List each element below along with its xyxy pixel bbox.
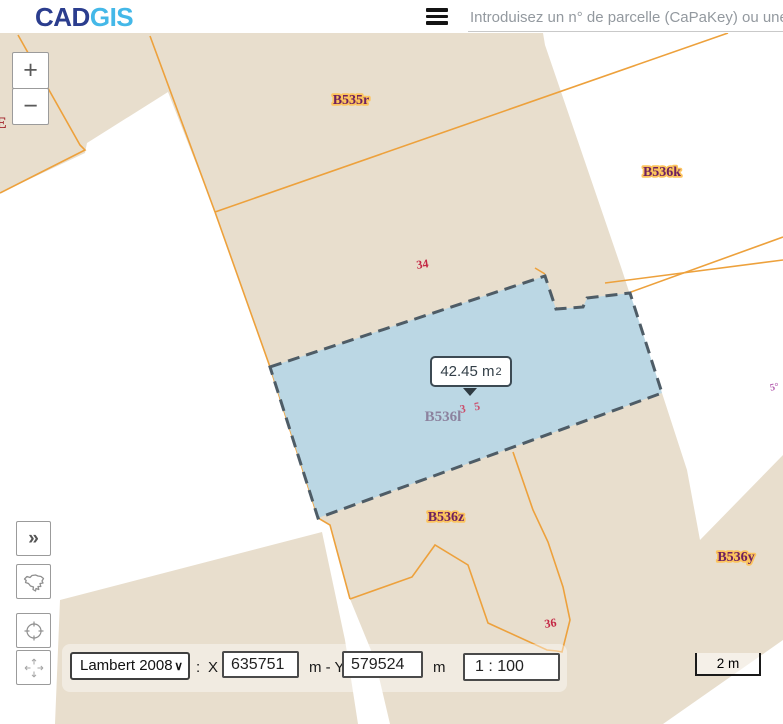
parcel-label: B535r (333, 93, 370, 108)
logo-part-gis: GIS (90, 2, 133, 32)
parcel-search-input[interactable] (468, 3, 783, 32)
pan-mode-button[interactable] (16, 650, 51, 685)
logo-part-cad: CAD (35, 2, 90, 32)
crs-select[interactable]: Lambert 2008 ∨ (70, 652, 190, 680)
colon-label: : (196, 659, 200, 676)
chevron-down-icon: ∨ (174, 654, 183, 678)
selected-parcel-label: B536l (425, 409, 462, 425)
zoom-out-button[interactable]: − (12, 88, 49, 125)
edge-parcel-letter: E (0, 115, 7, 132)
parcel-label: B536z (428, 510, 465, 525)
map-canvas[interactable]: B535r B536k B536z B536y B536l 34 3 5 36 … (0, 0, 783, 724)
x-coordinate-input[interactable] (222, 651, 299, 678)
zoom-to-belgium-button[interactable] (16, 564, 51, 599)
area-value: 42.45 m (440, 363, 494, 380)
tooltip-pointer (463, 388, 477, 396)
hamburger-menu-icon[interactable] (426, 8, 448, 26)
parcel-label: B536y (717, 550, 754, 565)
parcel-label: B536k (643, 165, 681, 180)
crosshair-icon (22, 619, 46, 643)
meter-unit-label: m (433, 659, 446, 676)
app-header: CADGIS (0, 0, 783, 33)
zoom-in-button[interactable]: + (12, 52, 49, 89)
house-number: 34 (416, 256, 430, 272)
x-coordinate-label: X (208, 659, 218, 676)
y-coordinate-input[interactable] (342, 651, 423, 678)
scale-line: 2 m (695, 653, 761, 676)
y-coordinate-label: m - Y (309, 659, 345, 676)
area-measurement-tooltip: 42.45 m2 (430, 356, 512, 387)
map-scale-input[interactable] (463, 653, 560, 681)
double-chevron-right-icon: » (28, 528, 39, 550)
pan-arrows-icon (22, 656, 46, 680)
zoom-controls: + − (12, 52, 49, 125)
area-exponent: 2 (496, 366, 502, 378)
expand-panel-button[interactable]: » (16, 521, 51, 556)
crs-selected-value: Lambert 2008 (80, 657, 173, 674)
house-number: 36 (544, 615, 558, 631)
cadgis-logo: CADGIS (35, 2, 133, 33)
scale-line-label: 2 m (717, 656, 740, 671)
belgium-outline-icon (22, 570, 46, 594)
geolocate-button[interactable] (16, 613, 51, 648)
